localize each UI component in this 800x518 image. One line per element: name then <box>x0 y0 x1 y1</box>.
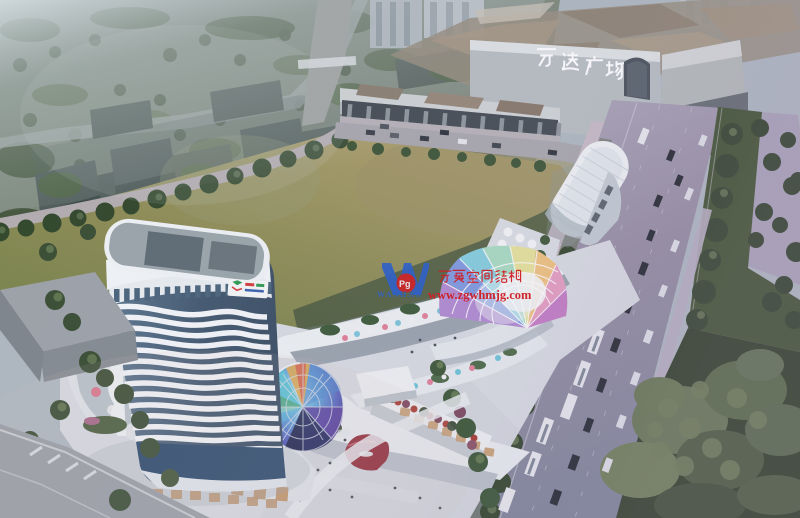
svg-text:Pg: Pg <box>399 279 411 289</box>
svg-text:WANHAO: WANHAO <box>377 290 423 299</box>
svg-text:www.zgwhmjg.com: www.zgwhmjg.com <box>428 288 532 302</box>
